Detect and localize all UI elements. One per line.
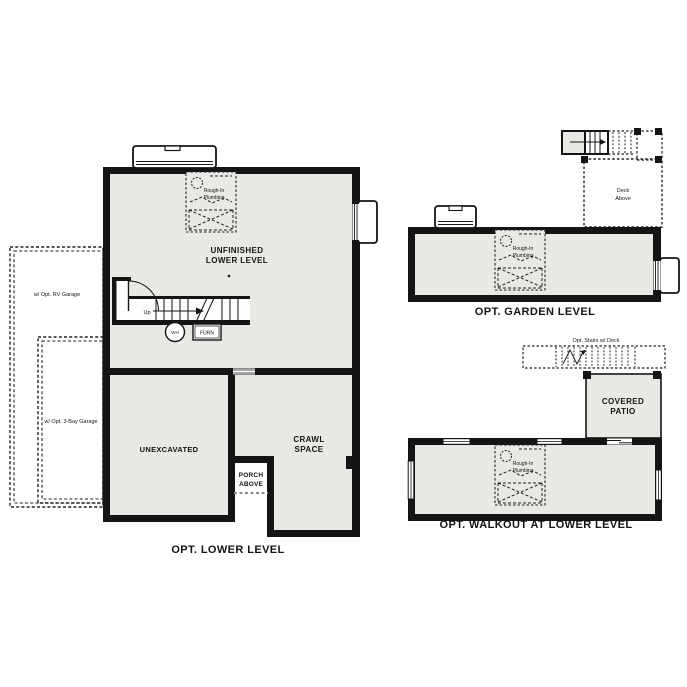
window-well-icon <box>654 258 680 293</box>
rough-in-plumbing-icon: Rough-In Plumbing <box>495 445 545 505</box>
rv-garage-label: w/ Opt. RV Garage <box>33 292 80 298</box>
water-heater-icon: WH <box>166 323 185 342</box>
deck-above-label-2: Above <box>615 196 631 202</box>
covered-patio: COVERED PATIO <box>583 371 661 438</box>
window-icon <box>443 439 470 445</box>
rv-garage-option-outline <box>10 247 103 507</box>
roughin-label-1: Rough-In <box>513 246 534 252</box>
reference-dot <box>228 275 231 278</box>
floorplan-svg: w/ Opt. RV Garage w/ Opt. 3-Bay Garage <box>0 0 687 687</box>
deck-above-label-1: Deck <box>617 188 630 194</box>
walkout-caption: OPT. WALKOUT AT LOWER LEVEL <box>440 519 633 531</box>
stairs-up-label: Up <box>143 310 150 316</box>
patio-door-icon <box>607 439 632 445</box>
unexcavated-label: UNEXCAVATED <box>140 445 199 454</box>
window-icon <box>537 439 562 445</box>
walkout-level-plan: Opt. Stairs w/ Deck COVERED PATIO <box>408 338 665 531</box>
unfinished-label-2: LOWER LEVEL <box>206 256 268 265</box>
covered-patio-label-1: COVERED <box>602 397 644 406</box>
garden-level-plan: Deck Above Rough-In Pl <box>408 128 679 318</box>
porch-label-2: ABOVE <box>239 481 264 488</box>
deck-landing-outline <box>634 128 662 160</box>
window-well-icon <box>435 206 476 228</box>
furnace-icon: FURN <box>193 324 221 340</box>
window-icon <box>656 470 662 500</box>
roughin-label-2: Plumbing <box>204 195 225 201</box>
wall-opening <box>233 369 255 375</box>
bay3-garage-label: w/ Opt. 3-Bay Garage <box>43 419 97 425</box>
unfinished-label-1: UNFINISHED <box>211 246 264 255</box>
window-well-icon <box>353 201 378 243</box>
window-well-icon <box>133 146 216 168</box>
window-icon <box>408 461 414 499</box>
porch-label-1: PORCH <box>239 472 264 479</box>
roughin-label-1: Rough-In <box>513 461 534 467</box>
lower-level-caption: OPT. LOWER LEVEL <box>171 544 284 556</box>
roughin-label-2: Plumbing <box>513 468 534 474</box>
garden-level-caption: OPT. GARDEN LEVEL <box>475 306 595 318</box>
wh-label: WH <box>171 330 179 335</box>
crawl-space-room-lower <box>270 455 356 534</box>
opt-stairs-outline <box>523 346 665 368</box>
floorplan-sheet: w/ Opt. RV Garage w/ Opt. 3-Bay Garage <box>0 0 687 687</box>
furn-label: FURN <box>200 331 214 337</box>
rough-in-plumbing-icon: Rough-In Plumbing <box>186 172 236 232</box>
rough-in-plumbing-icon: Rough-In Plumbing <box>495 230 545 290</box>
crawl-label-1: CRAWL <box>293 435 324 444</box>
covered-patio-label-2: PATIO <box>610 407 635 416</box>
lower-level-plan: w/ Opt. RV Garage w/ Opt. 3-Bay Garage <box>10 146 377 556</box>
roughin-label-2: Plumbing <box>513 253 534 259</box>
roughin-label-1: Rough-In <box>204 188 225 194</box>
deck-above-outline: Deck Above <box>581 156 662 227</box>
opt-stairs-deck-label: Opt. Stairs w/ Deck <box>572 338 619 344</box>
crawl-label-2: SPACE <box>295 445 324 454</box>
deck-stairs-icon <box>562 131 633 154</box>
porch-above-area: PORCH ABOVE <box>234 472 268 493</box>
